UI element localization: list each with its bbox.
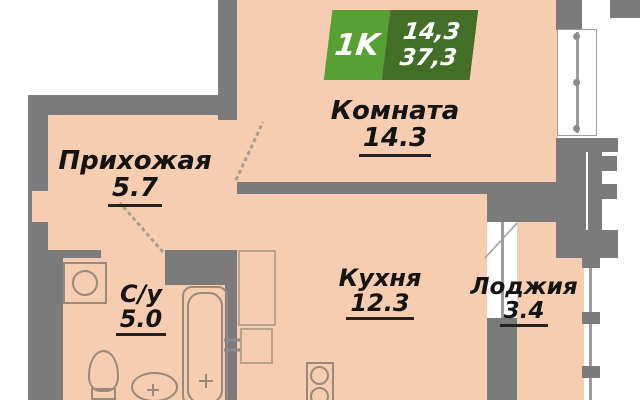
- room-area: 5.0: [116, 307, 167, 336]
- facade-detail: [602, 156, 617, 171]
- vent-shaft: [238, 250, 276, 326]
- room-area: 3.4: [500, 299, 549, 327]
- loggia-glazing-post: [582, 366, 600, 378]
- wall: [237, 182, 487, 194]
- badge-areas: 14,3 37,3: [382, 10, 479, 80]
- wall: [28, 222, 48, 252]
- wall: [28, 191, 32, 222]
- toilet-icon: [88, 350, 119, 392]
- room-label-hall: Прихожая 5.7: [40, 148, 230, 207]
- facade-detail: [586, 230, 618, 258]
- room-area: 14.3: [359, 125, 431, 156]
- facade-detail: [586, 138, 618, 152]
- window-hinge: [573, 125, 580, 132]
- room-name: С/у: [120, 280, 162, 308]
- wall: [487, 318, 517, 400]
- stove-burner: [310, 387, 329, 400]
- wall: [28, 95, 237, 115]
- window-hinge: [573, 33, 580, 40]
- kitchen-sink-icon: [240, 328, 273, 364]
- room-label-bath: С/у 5.0: [86, 282, 196, 336]
- bath-door-gap: [101, 250, 167, 258]
- room-area: 5.7: [108, 175, 162, 206]
- wall: [48, 250, 101, 258]
- sink-icon: [131, 372, 178, 400]
- room-name: Лоджия: [470, 274, 577, 300]
- badge-total-area: 37,3: [398, 45, 458, 71]
- room-area: 12.3: [346, 291, 413, 320]
- room-label-living: Комната 14.3: [290, 98, 500, 157]
- stove-burner: [310, 366, 329, 385]
- room-name: Комната: [331, 96, 460, 126]
- wall: [556, 0, 582, 30]
- wall: [556, 138, 586, 258]
- apartment-badge: 1K 14,3 37,3: [324, 10, 479, 80]
- wall: [165, 250, 237, 285]
- floor-plan[interactable]: Комната 14.3 Прихожая 5.7 Кухня 12.3 Лод…: [0, 0, 640, 400]
- window-hinge: [573, 79, 580, 86]
- loggia-glazing-post: [582, 256, 600, 268]
- badge-living-area: 14,3: [402, 19, 462, 45]
- room-label-kitchen: Кухня 12.3: [300, 266, 460, 320]
- wall: [28, 252, 63, 400]
- facade-detail: [602, 184, 617, 199]
- room-name: Кухня: [339, 264, 422, 292]
- facade-detail: [610, 0, 640, 18]
- toilet-tank: [91, 388, 116, 400]
- badge-rooms-label: 1K: [324, 10, 391, 80]
- room-label-loggia: Лоджия 3.4: [454, 275, 594, 327]
- room-name: Прихожая: [58, 146, 211, 176]
